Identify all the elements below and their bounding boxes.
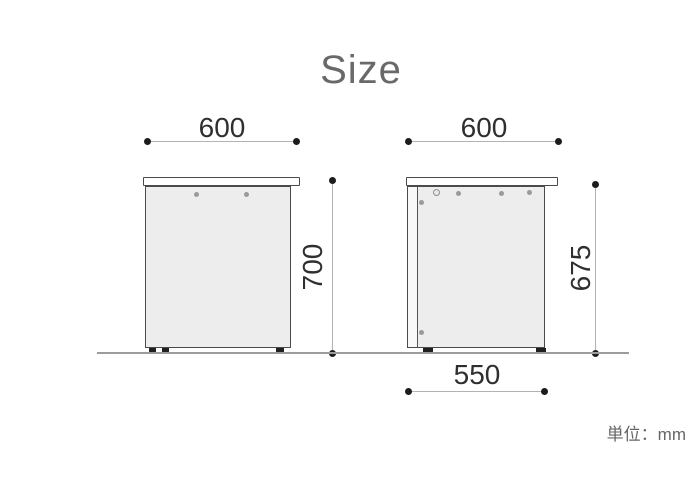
side-view-tabletop bbox=[406, 177, 558, 186]
screw-icon bbox=[527, 190, 532, 195]
dimension-endpoint-dot bbox=[541, 388, 548, 395]
unit-label: 単位：mm bbox=[538, 420, 686, 445]
side-view-front-edge bbox=[408, 187, 418, 347]
screw-icon bbox=[419, 330, 424, 335]
side-depth-label: 550 bbox=[427, 361, 527, 389]
ground-line bbox=[97, 352, 629, 354]
dimension-endpoint-dot bbox=[405, 138, 412, 145]
size-diagram: Size 600 700 600 bbox=[0, 0, 700, 485]
side-width-label: 600 bbox=[434, 114, 534, 142]
screw-icon bbox=[433, 189, 440, 196]
front-view-body-panel bbox=[145, 186, 291, 348]
page-title: Size bbox=[161, 48, 561, 93]
front-view-tabletop bbox=[143, 177, 300, 186]
side-view-body-panel bbox=[407, 186, 545, 348]
front-width-label: 600 bbox=[172, 114, 272, 142]
screw-icon bbox=[194, 192, 199, 197]
screw-icon bbox=[456, 191, 461, 196]
side-depth-dimension-line bbox=[412, 391, 544, 392]
screw-icon bbox=[419, 200, 424, 205]
dimension-endpoint-dot bbox=[293, 138, 300, 145]
dimension-endpoint-dot bbox=[555, 138, 562, 145]
front-height-dimension-line bbox=[332, 183, 333, 352]
dimension-endpoint-dot bbox=[329, 177, 336, 184]
side-height-label: 675 bbox=[567, 245, 595, 292]
screw-icon bbox=[244, 192, 249, 197]
front-height-label: 700 bbox=[299, 244, 327, 291]
dimension-endpoint-dot bbox=[405, 388, 412, 395]
dimension-endpoint-dot bbox=[592, 181, 599, 188]
dimension-endpoint-dot bbox=[144, 138, 151, 145]
screw-icon bbox=[499, 191, 504, 196]
